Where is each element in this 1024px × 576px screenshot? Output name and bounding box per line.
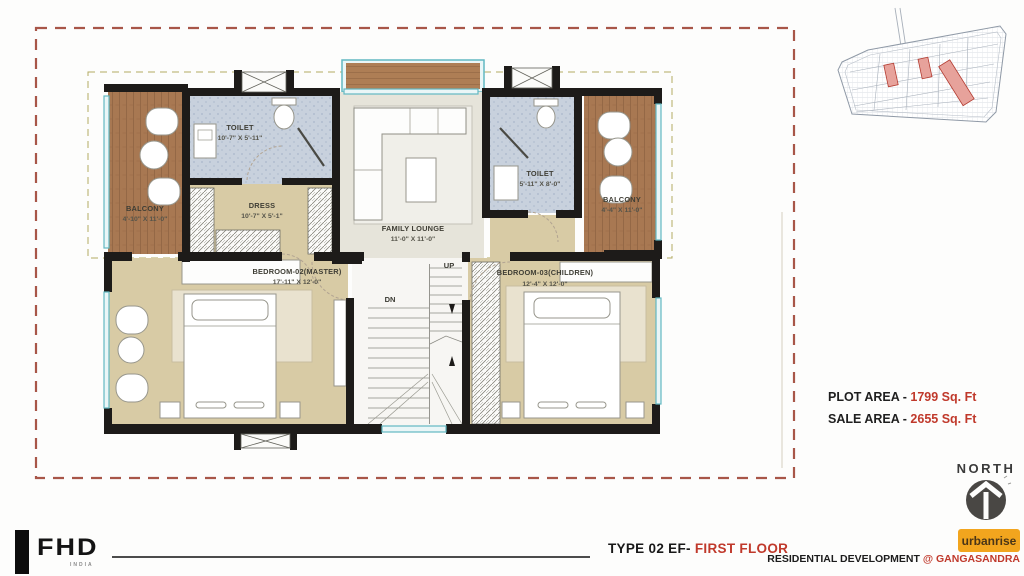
room-label: BALCONY [603, 195, 641, 204]
room-label: BEDROOM-03(CHILDREN) [497, 268, 594, 277]
tv-console [334, 300, 346, 386]
dress-wardrobe [190, 188, 214, 254]
wc-bowl [274, 105, 294, 129]
floor-plan-drawing: BALCONY 4'-10" X 11'-0" TOILET 10'-7" X … [0, 0, 1024, 576]
plan-type-label: TYPE 02 EF- [608, 541, 695, 556]
sale-area-line: SALE AREA - 2655 Sq. Ft [828, 408, 976, 430]
room-label: BALCONY [126, 204, 164, 213]
plan-floor-label: FIRST FLOOR [695, 541, 788, 556]
room-label: TOILET [526, 169, 554, 178]
wc-tank [272, 98, 296, 105]
room-dims: 5'-11" X 8'-0" [519, 181, 560, 188]
deck-floor [346, 63, 480, 89]
site-key-plan [838, 8, 1006, 122]
washbasin [494, 166, 518, 200]
room-dims: 10'-7" X 5'-1" [241, 213, 282, 220]
north-label: NORTH [956, 461, 1016, 476]
area-statement: PLOT AREA - 1799 Sq. Ft SALE AREA - 2655… [828, 386, 976, 430]
room-dims: 17'-11" X 12'-0" [273, 279, 322, 286]
pillow [534, 298, 610, 318]
project-location: @ GANGASANDRA [923, 553, 1020, 565]
room-dims: 11'-0" X 11'-0" [391, 236, 435, 243]
children-wardrobe [472, 262, 500, 424]
project-title-label: RESIDENTIAL DEVELOPMENT [767, 553, 923, 565]
fhd-logo-subtext: INDIA [70, 562, 94, 568]
wc-bowl [537, 106, 555, 128]
project-title: RESIDENTIAL DEVELOPMENT @ GANGASANDRA [767, 553, 1020, 565]
washbasin [194, 124, 216, 158]
nightstand [280, 402, 300, 418]
footer-divider-line [112, 556, 590, 558]
room-label: TOILET [226, 123, 254, 132]
nightstand [502, 402, 520, 418]
fhd-logo-bar [15, 530, 29, 574]
room-label: FAMILY LOUNGE [382, 224, 445, 233]
urbanrise-logo: urbanrise [958, 529, 1020, 552]
balcony-table [140, 141, 168, 169]
dress-wardrobe [308, 188, 332, 254]
bedroom-chair [116, 374, 148, 402]
pillow [192, 300, 268, 320]
balcony-table [604, 138, 632, 166]
fhd-logo: FHD [37, 534, 99, 561]
balcony-chair [148, 178, 180, 205]
room-dims: 4'-10" X 11'-0" [123, 216, 168, 223]
bedroom-table [118, 337, 144, 363]
plan-title: TYPE 02 EF- FIRST FLOOR [608, 541, 788, 556]
balcony-chair [146, 108, 178, 135]
room-dims: 10'-7" X 5'-11" [218, 135, 263, 142]
nightstand [160, 402, 180, 418]
room-label: DRESS [249, 201, 275, 210]
plot-area-value: 1799 Sq. Ft [910, 390, 976, 404]
stair-up-label: UP [444, 261, 454, 270]
stair-dn-label: DN [385, 295, 396, 304]
sale-area-label: SALE AREA - [828, 412, 910, 426]
balcony-chair [598, 112, 630, 139]
nightstand [626, 402, 644, 418]
room-dims: 4'-4" X 11'-0" [601, 207, 642, 214]
floorplan-sheet: BALCONY 4'-10" X 11'-0" TOILET 10'-7" X … [0, 0, 1024, 576]
stair-floor [352, 258, 468, 428]
dress-wardrobe [216, 230, 280, 254]
plot-area-label: PLOT AREA - [828, 390, 910, 404]
plot-area-line: PLOT AREA - 1799 Sq. Ft [828, 386, 976, 408]
coffee-table [406, 158, 436, 202]
wc-tank [534, 99, 558, 106]
bedroom-chair [116, 306, 148, 334]
north-compass-icon [966, 476, 1011, 520]
room-dims: 12'-4" X 12'-0" [522, 281, 567, 288]
room-label: BEDROOM-02(MASTER) [252, 267, 341, 276]
urbanrise-logo-text: urbanrise [962, 534, 1017, 548]
sale-area-value: 2655 Sq. Ft [910, 412, 976, 426]
